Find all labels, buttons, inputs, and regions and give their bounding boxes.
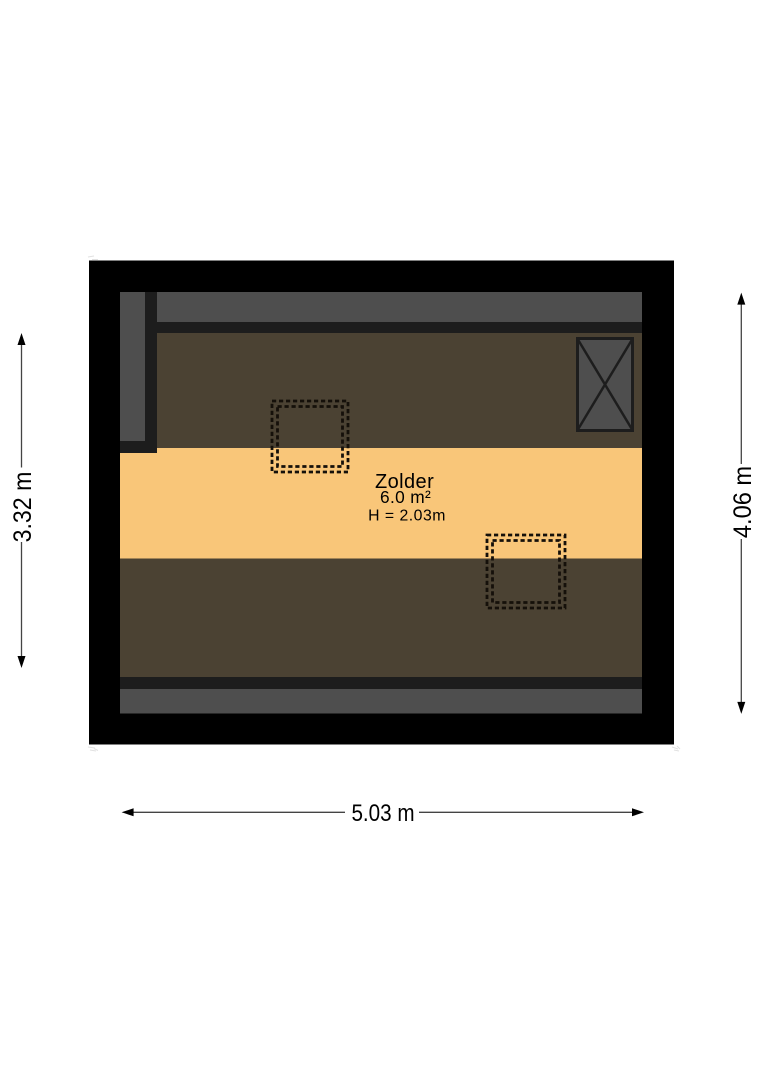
svg-text:H = 2.03m: H = 2.03m <box>368 507 446 524</box>
svg-text:6.0 m²: 6.0 m² <box>380 487 431 507</box>
svg-text:4.06 m: 4.06 m <box>729 466 757 538</box>
svg-text:5.03 m: 5.03 m <box>351 800 414 827</box>
svg-text:3.32 m: 3.32 m <box>9 472 37 543</box>
